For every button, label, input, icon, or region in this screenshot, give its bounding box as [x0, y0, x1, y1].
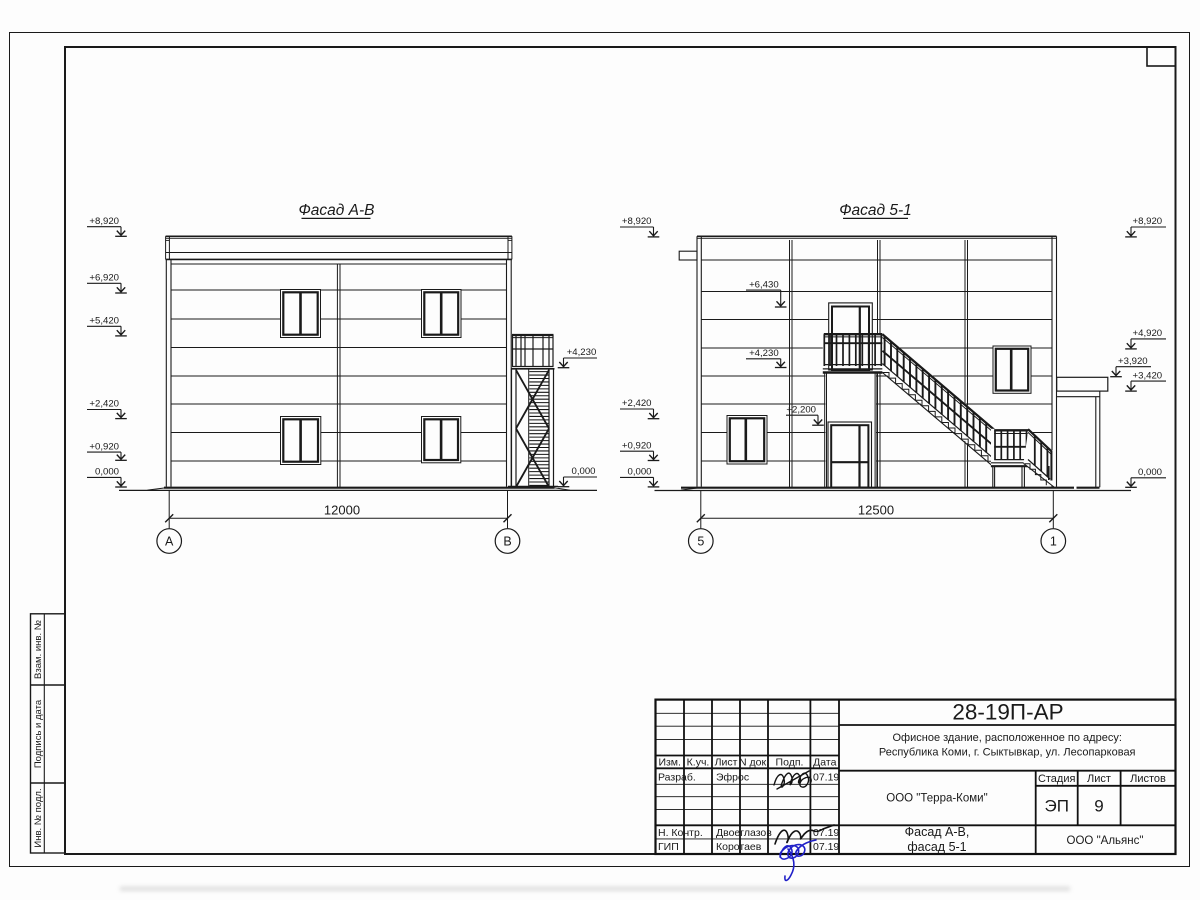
svg-text:Коротаев: Коротаев: [716, 841, 762, 853]
svg-text:+6,430: +6,430: [749, 279, 779, 290]
svg-text:Фасад А-В,: Фасад А-В,: [905, 825, 970, 839]
svg-text:Фасад А-В: Фасад А-В: [298, 202, 374, 219]
svg-text:+0,920: +0,920: [89, 441, 119, 452]
svg-text:В: В: [503, 535, 511, 549]
svg-text:0,000: 0,000: [571, 466, 595, 477]
svg-text:+2,200: +2,200: [786, 404, 816, 415]
svg-text:Дата: Дата: [813, 756, 836, 768]
svg-text:Разраб.: Разраб.: [658, 772, 696, 784]
svg-text:Взам. инв. №: Взам. инв. №: [33, 620, 44, 679]
svg-text:N док.: N док.: [739, 756, 769, 768]
svg-text:07.19: 07.19: [813, 827, 839, 839]
svg-text:ГИП: ГИП: [658, 841, 679, 853]
svg-text:07.19: 07.19: [813, 772, 839, 784]
svg-text:9: 9: [1094, 797, 1103, 816]
svg-text:Лист: Лист: [715, 756, 738, 768]
svg-text:0,000: 0,000: [627, 467, 651, 478]
svg-text:Подпись и дата: Подпись и дата: [33, 699, 44, 768]
svg-text:07.19: 07.19: [813, 841, 839, 853]
svg-text:Листов: Листов: [1130, 773, 1166, 785]
svg-text:5: 5: [697, 535, 704, 549]
svg-text:12500: 12500: [858, 503, 894, 518]
svg-text:+2,420: +2,420: [89, 399, 119, 410]
svg-text:А: А: [165, 535, 174, 549]
svg-text:Изм.: Изм.: [658, 756, 681, 768]
svg-text:фасад 5-1: фасад 5-1: [907, 840, 966, 854]
svg-text:Лист: Лист: [1087, 773, 1111, 785]
svg-text:+8,920: +8,920: [622, 216, 652, 227]
svg-text:+2,420: +2,420: [622, 398, 652, 409]
svg-text:28-19П-АР: 28-19П-АР: [952, 700, 1063, 725]
svg-text:+4,230: +4,230: [567, 347, 597, 358]
svg-text:Офисное здание, расположенное: Офисное здание, расположенное по адресу:: [893, 732, 1122, 744]
svg-text:0,000: 0,000: [95, 467, 119, 478]
svg-text:+3,420: +3,420: [1133, 370, 1163, 381]
svg-text:Эфрос: Эфрос: [716, 772, 749, 784]
svg-text:Двоеглазов: Двоеглазов: [716, 827, 772, 839]
svg-text:+4,230: +4,230: [749, 348, 779, 359]
svg-text:+5,420: +5,420: [89, 316, 119, 327]
svg-text:+8,920: +8,920: [89, 216, 119, 227]
svg-text:Инв. № подл.: Инв. № подл.: [33, 788, 44, 847]
svg-text:0,000: 0,000: [1138, 467, 1162, 478]
svg-text:Подп.: Подп.: [776, 756, 804, 768]
svg-text:1: 1: [1050, 535, 1057, 549]
svg-text:+8,920: +8,920: [1133, 216, 1163, 227]
svg-text:К.уч.: К.уч.: [687, 756, 710, 768]
svg-text:ЭП: ЭП: [1044, 797, 1068, 816]
svg-text:+3,920: +3,920: [1118, 356, 1148, 367]
svg-text:12000: 12000: [324, 503, 360, 518]
svg-text:ООО "Альянс": ООО "Альянс": [1067, 835, 1144, 847]
svg-text:Республика Коми, г. Сыктывкар,: Республика Коми, г. Сыктывкар, ул. Лесоп…: [879, 746, 1136, 758]
svg-text:+0,920: +0,920: [622, 440, 652, 451]
svg-text:Н. Контр.: Н. Контр.: [658, 827, 703, 839]
svg-text:Фасад 5-1: Фасад 5-1: [839, 202, 912, 219]
svg-text:+6,920: +6,920: [89, 273, 119, 284]
svg-text:ООО "Терра-Коми": ООО "Терра-Коми": [886, 793, 987, 805]
svg-text:Стадия: Стадия: [1038, 773, 1076, 785]
svg-text:+4,920: +4,920: [1133, 328, 1163, 339]
